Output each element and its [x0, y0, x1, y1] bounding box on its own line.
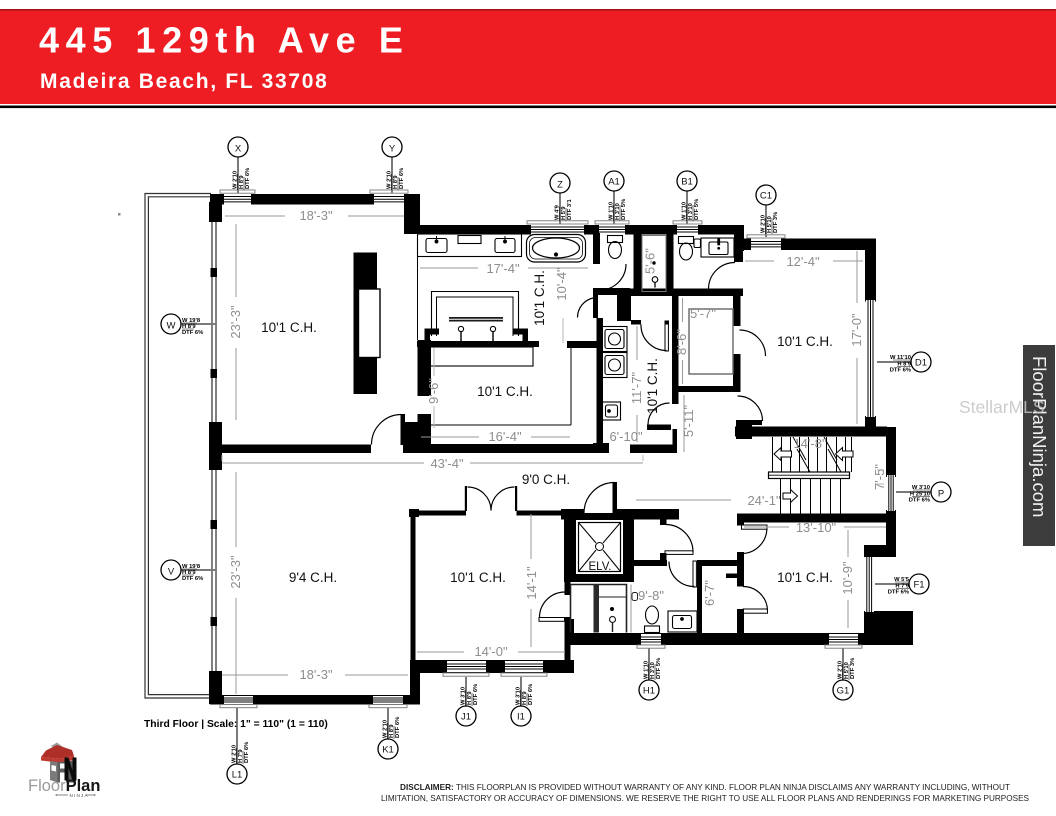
svg-text:X: X: [235, 143, 242, 154]
svg-text:I1: I1: [517, 712, 525, 723]
svg-text:43'-4": 43'-4": [430, 456, 464, 471]
svg-text:F1: F1: [913, 580, 924, 591]
svg-text:DTF 5%: DTF 5%: [694, 199, 700, 220]
svg-text:6'-10": 6'-10": [609, 429, 643, 444]
svg-text:DISCLAIMER: THIS FLOORPLAN IS: DISCLAIMER: THIS FLOORPLAN IS PROVIDED W…: [400, 783, 1010, 792]
svg-text:Z: Z: [557, 179, 563, 190]
svg-text:18'-3": 18'-3": [299, 208, 333, 223]
svg-text:12'-4": 12'-4": [786, 254, 820, 269]
svg-text:DTF 6%: DTF 6%: [395, 717, 401, 738]
svg-text:5'-11": 5'-11": [681, 405, 696, 438]
svg-text:DTF 3%: DTF 3%: [850, 658, 856, 679]
svg-text:DTF 6%: DTF 6%: [245, 168, 251, 189]
svg-text:LIMITATION, SATISFACTORY OR AC: LIMITATION, SATISFACTORY OR ACCURACY OF …: [381, 794, 1030, 803]
svg-text:P: P: [938, 488, 944, 499]
svg-text:DTF 6%: DTF 6%: [888, 590, 909, 596]
svg-text:13'-10": 13'-10": [796, 520, 837, 535]
svg-text:10'1 C.H.: 10'1 C.H.: [777, 334, 833, 349]
svg-text:NINJA: NINJA: [70, 793, 89, 798]
svg-text:10'1 C.H.: 10'1 C.H.: [261, 320, 317, 335]
svg-text:B1: B1: [681, 177, 693, 188]
svg-text:DTF 6%: DTF 6%: [890, 368, 911, 374]
svg-text:V: V: [168, 566, 175, 577]
svg-text:L1: L1: [232, 770, 243, 781]
svg-text:Madeira Beach, FL 33708: Madeira Beach, FL 33708: [40, 70, 329, 93]
svg-text:17'-0": 17'-0": [849, 313, 864, 347]
svg-text:10'1 C.H.: 10'1 C.H.: [477, 384, 533, 399]
svg-text:18'-3": 18'-3": [299, 667, 333, 682]
svg-text:DTF 6%: DTF 6%: [528, 684, 534, 705]
svg-text:10'1 C.H.: 10'1 C.H.: [450, 570, 506, 585]
svg-text:14'-8": 14'-8": [793, 436, 827, 451]
svg-text:D1: D1: [915, 358, 927, 369]
svg-text:10'1 C.H.: 10'1 C.H.: [645, 358, 660, 414]
svg-text:9'-8": 9'-8": [638, 588, 664, 603]
svg-text:H1: H1: [643, 686, 655, 697]
svg-text:DTF 6%: DTF 6%: [182, 330, 203, 336]
svg-text:9'0 C.H.: 9'0 C.H.: [522, 472, 570, 487]
svg-text:17'-4": 17'-4": [486, 261, 520, 276]
svg-text:Third Floor | Scale: 1" = 110": Third Floor | Scale: 1" = 110" (1 = 110): [144, 719, 328, 730]
svg-text:J1: J1: [461, 712, 471, 723]
svg-text:ELV.: ELV.: [588, 561, 611, 573]
svg-text:W: W: [167, 320, 176, 331]
svg-text:16'-4": 16'-4": [488, 429, 522, 444]
svg-text:DTF 3'1: DTF 3'1: [567, 199, 573, 220]
svg-text:FloorPlan: FloorPlan: [28, 777, 100, 795]
svg-text:DTF 5%: DTF 5%: [656, 658, 662, 679]
svg-text:DTF 3%: DTF 3%: [773, 212, 779, 233]
svg-text:DTF 5%: DTF 5%: [621, 199, 627, 220]
svg-text:23'-3": 23'-3": [228, 555, 243, 589]
svg-text:23'-3": 23'-3": [228, 305, 243, 339]
svg-text:C1: C1: [760, 191, 772, 202]
svg-text:Y: Y: [389, 143, 396, 154]
svg-text:FloorPlanNinja.com: FloorPlanNinja.com: [1029, 356, 1050, 517]
svg-text:9'-6": 9'-6": [426, 378, 441, 404]
svg-text:7'-5": 7'-5": [872, 464, 887, 490]
svg-text:10'-4": 10'-4": [554, 267, 569, 301]
svg-text:9'4 C.H.: 9'4 C.H.: [289, 570, 337, 585]
svg-text:DTF 6%: DTF 6%: [909, 498, 930, 504]
svg-text:DTF 6%: DTF 6%: [399, 168, 405, 189]
svg-text:11'-7": 11'-7": [629, 372, 644, 405]
svg-text:K1: K1: [382, 745, 394, 756]
svg-text:StellarMLS: StellarMLS: [959, 397, 1045, 417]
svg-text:445 129th Ave E: 445 129th Ave E: [39, 20, 410, 61]
svg-text:DTF 6%: DTF 6%: [182, 576, 203, 582]
svg-text:6'-7": 6'-7": [702, 580, 717, 606]
svg-text:14'-0": 14'-0": [474, 644, 508, 659]
svg-text:A1: A1: [608, 177, 620, 188]
svg-text:DTF 6%: DTF 6%: [473, 684, 479, 705]
svg-text:24'-1": 24'-1": [747, 493, 781, 508]
svg-text:DTF 6%: DTF 6%: [244, 742, 250, 763]
svg-text:10'1 C.H.: 10'1 C.H.: [777, 570, 833, 585]
svg-text:8'-6": 8'-6": [674, 329, 689, 355]
svg-text:10'1 C.H.: 10'1 C.H.: [532, 270, 547, 326]
svg-text:14'-1": 14'-1": [524, 566, 539, 600]
svg-text:5'-6": 5'-6": [643, 248, 658, 274]
svg-text:G1: G1: [837, 686, 850, 697]
svg-text:10'-9": 10'-9": [840, 561, 855, 595]
svg-text:5'-7": 5'-7": [690, 306, 716, 321]
